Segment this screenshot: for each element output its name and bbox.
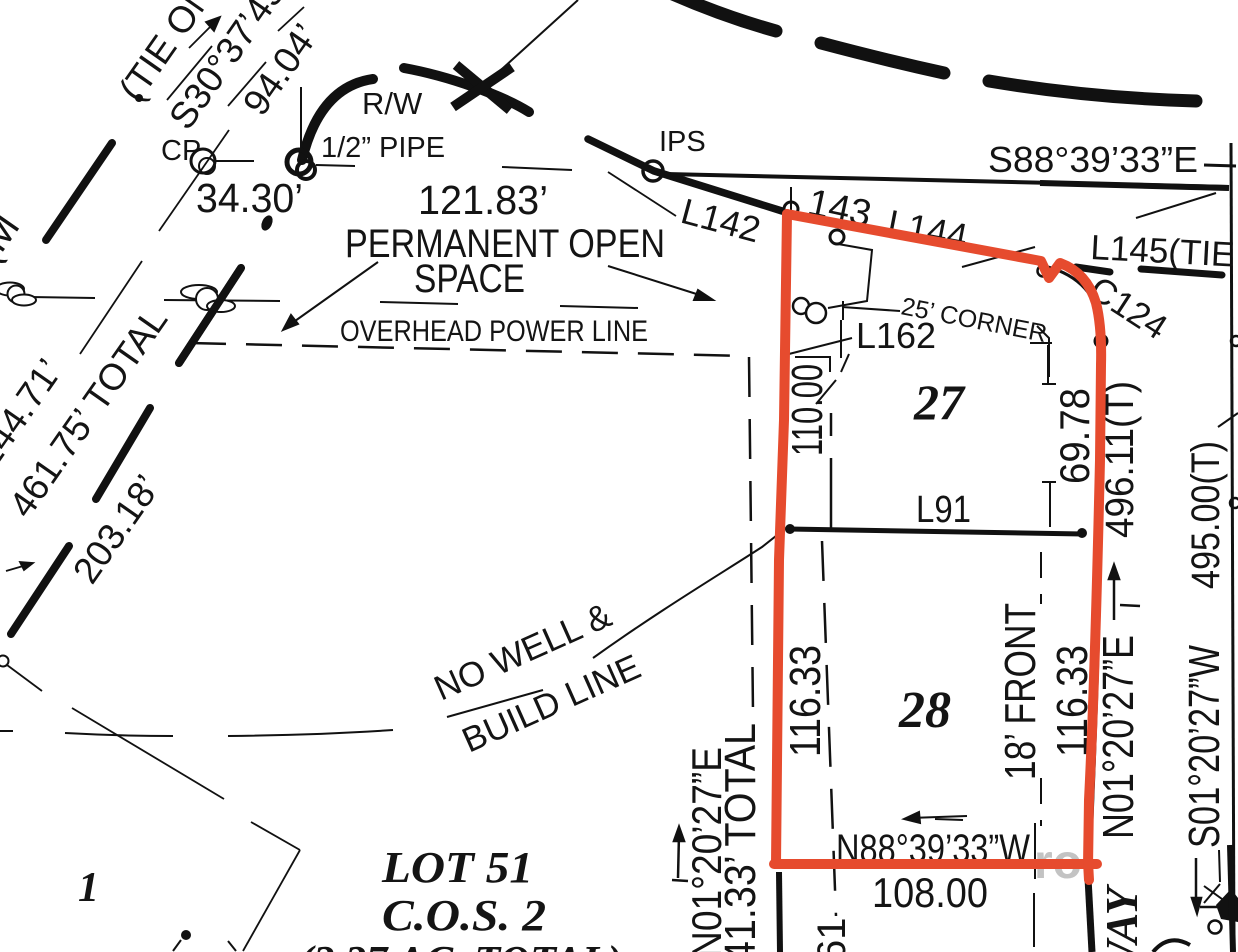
- svg-text:28: 28: [898, 682, 951, 739]
- svg-text:(2.37 AC. TOTAL): (2.37 AC. TOTAL): [299, 937, 622, 952]
- svg-text:OVERHEAD POWER LINE: OVERHEAD POWER LINE: [340, 315, 648, 348]
- svg-text:R/W: R/W: [362, 86, 423, 121]
- svg-text:121.83’: 121.83’: [418, 177, 548, 223]
- svg-text:S01°20’27”W: S01°20’27”W: [1180, 645, 1229, 848]
- svg-text:IPS: IPS: [659, 126, 706, 158]
- svg-text:N01°20’27”E: N01°20’27”E: [1094, 635, 1143, 839]
- svg-text:495.00(T): 495.00(T): [1184, 441, 1228, 589]
- svg-text:108.00: 108.00: [872, 869, 988, 916]
- svg-text:S88°39’33”E: S88°39’33”E: [988, 139, 1198, 180]
- svg-text:1: 1: [78, 865, 99, 911]
- svg-text:C.O.S. 2: C.O.S. 2: [382, 891, 546, 940]
- svg-text:34.30’: 34.30’: [196, 175, 303, 221]
- svg-text:116.33: 116.33: [781, 645, 830, 757]
- svg-text:69.78: 69.78: [1051, 388, 1098, 484]
- svg-text:LOT 51: LOT 51: [381, 843, 533, 892]
- svg-text:61: 61: [810, 918, 854, 952]
- svg-text:27: 27: [913, 374, 966, 430]
- svg-text:WAY: WAY: [1096, 883, 1147, 952]
- svg-text:SPACE: SPACE: [414, 257, 525, 301]
- svg-text:L162: L162: [856, 315, 936, 356]
- svg-text:L91: L91: [916, 489, 971, 531]
- svg-text:18’ FRONT: 18’ FRONT: [996, 603, 1045, 780]
- svg-text:1/2” PIPE: 1/2” PIPE: [321, 132, 445, 164]
- svg-text:110.00: 110.00: [783, 364, 832, 456]
- svg-text:41.33’ TOTAL: 41.33’ TOTAL: [716, 723, 765, 952]
